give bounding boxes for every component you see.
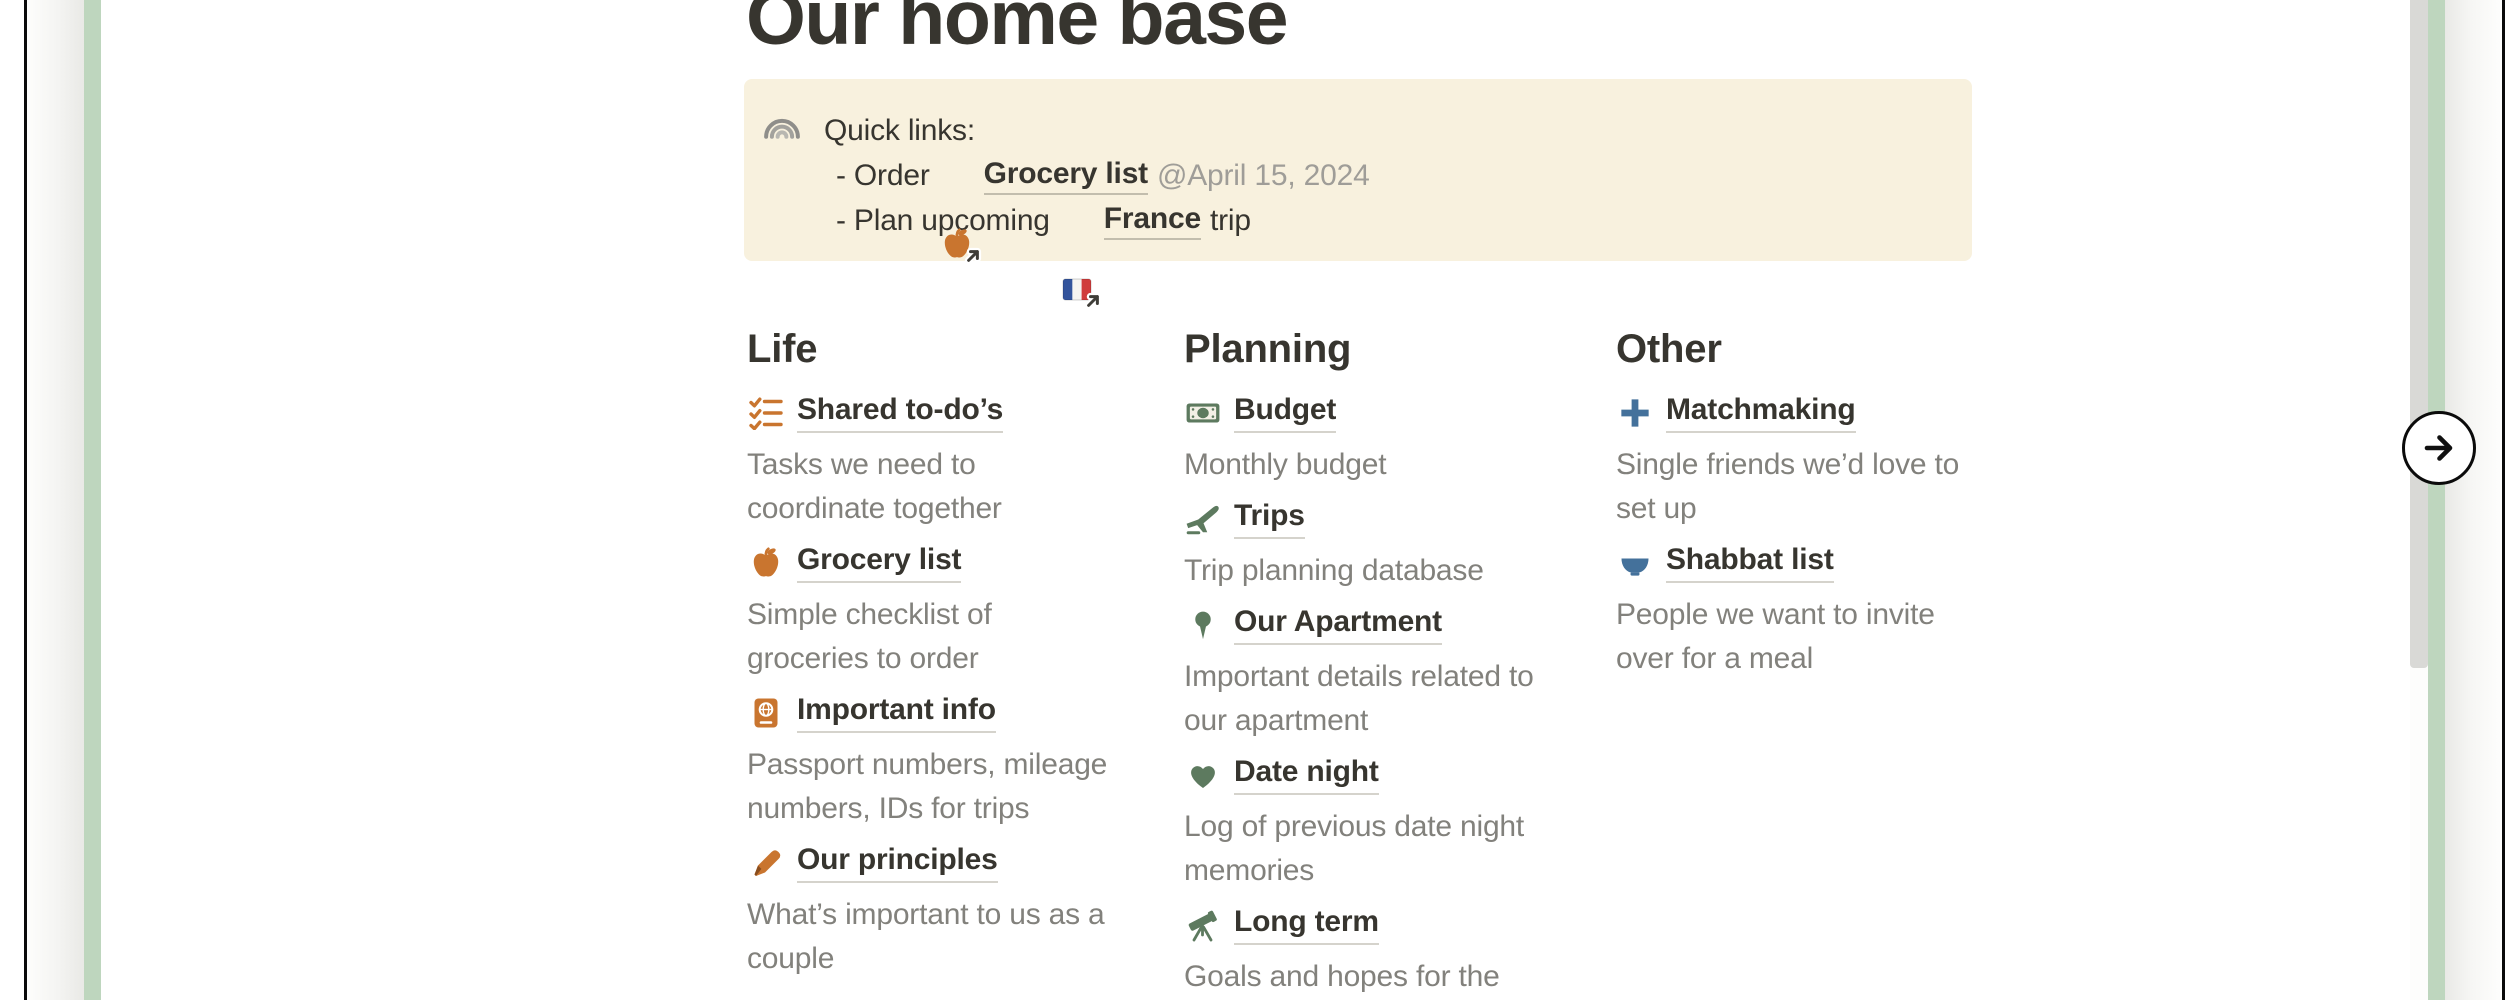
todo-list-icon[interactable] bbox=[747, 395, 785, 431]
right-gutter bbox=[2445, 0, 2502, 1000]
column-other: Other Matchmaking Single friends we’d lo… bbox=[1616, 327, 2048, 691]
page-link-important-info[interactable]: Important info bbox=[747, 691, 1179, 735]
column-heading: Other bbox=[1616, 327, 2048, 371]
column-planning: Planning Budget Monthly budget bbox=[1184, 327, 1616, 1000]
page-link-label[interactable]: Our principles bbox=[797, 843, 998, 883]
page-description: What’s important to us as a couple bbox=[747, 893, 1179, 981]
page-link-trips[interactable]: Trips bbox=[1184, 497, 1616, 541]
column-life: Life Shared to-do’s Tasks we need to coo… bbox=[747, 327, 1179, 991]
rainbow-icon bbox=[762, 105, 802, 145]
airplane-icon[interactable] bbox=[1184, 501, 1222, 537]
scrollbar-thumb[interactable] bbox=[2410, 0, 2428, 668]
pen-icon[interactable] bbox=[747, 845, 785, 881]
page-description: Log of previous date night memories bbox=[1184, 805, 1616, 893]
page-description: People we want to invite over for a meal bbox=[1616, 593, 2048, 681]
bowl-icon[interactable] bbox=[1616, 545, 1654, 581]
quick-links-label: Quick links: bbox=[824, 114, 975, 148]
grocery-list-page-chip[interactable] bbox=[940, 159, 974, 193]
page-title: Our home base bbox=[746, 0, 1287, 58]
page-link-shared-todos[interactable]: Shared to-do’s bbox=[747, 391, 1179, 435]
page-link-long-term[interactable]: Long term bbox=[1184, 903, 1616, 947]
page-description: Monthly budget bbox=[1184, 443, 1616, 487]
next-button[interactable] bbox=[2402, 411, 2476, 485]
callout-line-order: - Order bbox=[824, 153, 1370, 198]
page-link-label[interactable]: Our Apartment bbox=[1234, 605, 1442, 645]
page-link-budget[interactable]: Budget bbox=[1184, 391, 1616, 435]
banknote-icon[interactable] bbox=[1184, 395, 1222, 431]
page-link-our-principles[interactable]: Our principles bbox=[747, 841, 1179, 885]
template-page-card: Our home base Quick links: - Order bbox=[101, 0, 2410, 1000]
page-link-label[interactable]: Shared to-do’s bbox=[797, 393, 1003, 433]
plus-icon[interactable] bbox=[1616, 395, 1654, 431]
page-link-label[interactable]: Matchmaking bbox=[1666, 393, 1856, 433]
page-link-our-apartment[interactable]: Our Apartment bbox=[1184, 603, 1616, 647]
page-link-label[interactable]: Long term bbox=[1234, 905, 1379, 945]
open-page-arrow-icon bbox=[1083, 223, 1103, 243]
date-mention[interactable]: @April 15, 2024 bbox=[1157, 159, 1370, 193]
order-prefix-text: - Order bbox=[836, 159, 930, 193]
apple-icon[interactable] bbox=[747, 545, 785, 581]
column-heading: Planning bbox=[1184, 327, 1616, 371]
open-page-arrow-icon bbox=[963, 178, 983, 198]
page-link-grocery-list[interactable]: Grocery list bbox=[747, 541, 1179, 585]
page-description: Trip planning database bbox=[1184, 549, 1616, 593]
page-description: Tasks we need to coordinate together bbox=[747, 443, 1179, 531]
scrollbar-track[interactable] bbox=[2410, 0, 2428, 1000]
modal-right-border bbox=[2502, 0, 2505, 1000]
france-page-chip[interactable] bbox=[1060, 204, 1094, 238]
page-link-label[interactable]: Important info bbox=[797, 693, 996, 733]
page-description: Single friends we’d love to set up bbox=[1616, 443, 2048, 531]
card-background-strip-right bbox=[2428, 0, 2445, 1000]
card-background-strip-left bbox=[84, 0, 101, 1000]
page-description: Goals and hopes for the bbox=[1184, 955, 1616, 999]
grocery-list-link[interactable]: Grocery list bbox=[984, 157, 1148, 195]
page-link-shabbat-list[interactable]: Shabbat list bbox=[1616, 541, 2048, 585]
page-description: Passport numbers, mileage numbers, IDs f… bbox=[747, 743, 1179, 831]
plan-suffix-text: trip bbox=[1210, 204, 1251, 238]
page-link-label[interactable]: Budget bbox=[1234, 393, 1336, 433]
arrow-right-icon bbox=[2419, 428, 2459, 468]
page-description: Simple checklist of groceries to order bbox=[747, 593, 1179, 681]
telescope-icon[interactable] bbox=[1184, 907, 1222, 943]
page-link-matchmaking[interactable]: Matchmaking bbox=[1616, 391, 2048, 435]
left-gutter bbox=[27, 0, 84, 1000]
template-preview-screen: Our home base Quick links: - Order bbox=[0, 0, 2520, 1000]
column-heading: Life bbox=[747, 327, 1179, 371]
callout-line-title: Quick links: bbox=[824, 108, 1370, 153]
passport-icon[interactable] bbox=[747, 695, 785, 731]
page-link-label[interactable]: Trips bbox=[1234, 499, 1305, 539]
page-link-label[interactable]: Date night bbox=[1234, 755, 1379, 795]
france-trip-link[interactable]: France bbox=[1104, 202, 1201, 240]
page-description: Important details related to our apartme… bbox=[1184, 655, 1616, 743]
callout-line-plan: - Plan upcoming bbox=[824, 198, 1370, 243]
page-link-label[interactable]: Shabbat list bbox=[1666, 543, 1834, 583]
heart-icon[interactable] bbox=[1184, 757, 1222, 793]
page-link-label[interactable]: Grocery list bbox=[797, 543, 961, 583]
page-link-date-night[interactable]: Date night bbox=[1184, 753, 1616, 797]
round-pushpin-icon[interactable] bbox=[1184, 607, 1222, 643]
quick-links-callout: Quick links: - Order bbox=[744, 79, 1972, 261]
